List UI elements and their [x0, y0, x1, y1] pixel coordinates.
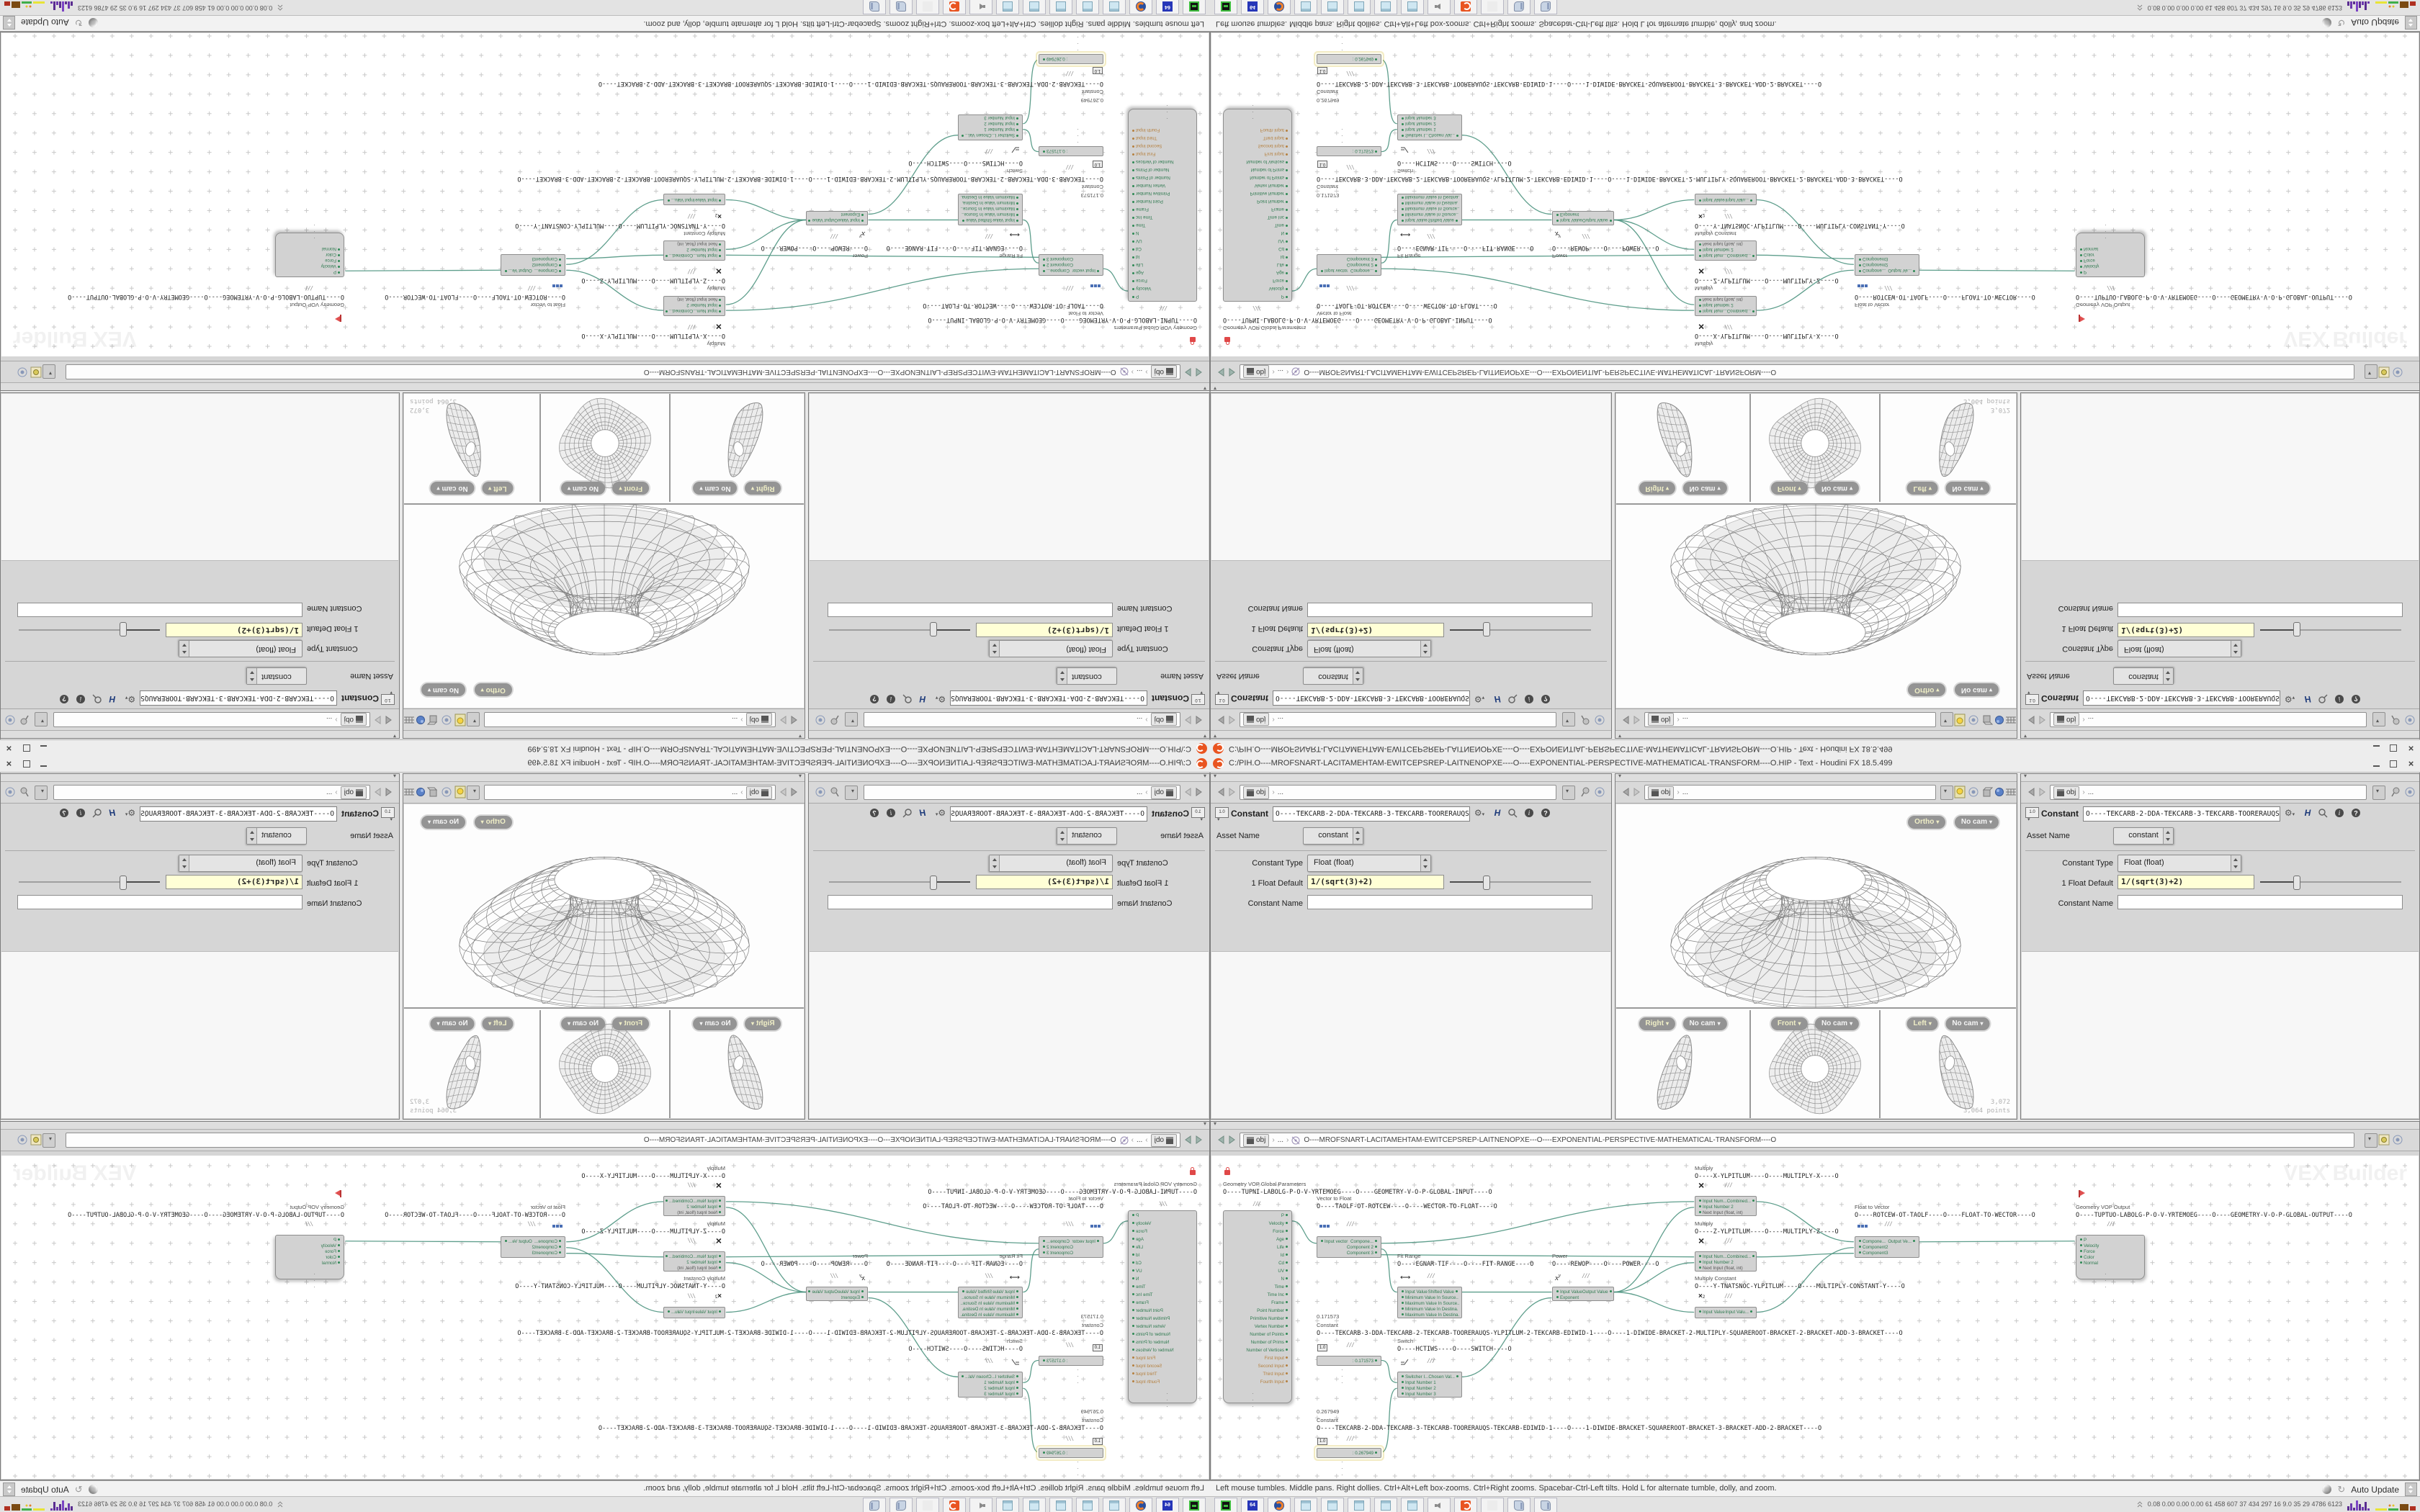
node-body[interactable]: Compone...Output Ve...Component2Componen…: [1855, 1236, 1919, 1258]
node-body[interactable]: PVelocityForceAgeLifeIdCdUVNTimeTime Inc…: [1223, 109, 1292, 302]
constant-type-dropdown[interactable]: Float (float): [179, 640, 302, 657]
node-port-row[interactable]: Input vectorCompone...: [1041, 267, 1101, 273]
node-port-row[interactable]: Minimum Value In Destina.: [1400, 199, 1459, 205]
node-port-row[interactable]: : 0.267949: [1319, 55, 1379, 61]
node-port-row[interactable]: Next Input (float, int): [1698, 296, 1754, 302]
path-dropdown-button[interactable]: [35, 712, 48, 726]
node-port-row[interactable]: Color: [2079, 251, 2142, 257]
gear-icon[interactable]: ⚙▾: [933, 808, 948, 821]
help-browser-icon[interactable]: H: [2300, 808, 2315, 821]
radial-menu-icon[interactable]: [1968, 714, 1979, 726]
node-port-row[interactable]: Number of Points: [1131, 1332, 1194, 1338]
taskbar-app-notepad[interactable]: [1401, 0, 1424, 14]
shaded-sphere-icon[interactable]: [1994, 786, 2005, 798]
node-port-row[interactable]: : 0.171573: [1041, 1359, 1101, 1364]
node-port-row[interactable]: Life: [1226, 261, 1289, 267]
node-port-row[interactable]: Component 2: [1319, 1245, 1379, 1251]
constant-node-icon[interactable]: 1.0: [1191, 807, 1205, 818]
node-port-row[interactable]: P: [1131, 293, 1194, 299]
help-browser-icon[interactable]: H: [105, 691, 120, 704]
constant-name-field[interactable]: [17, 895, 302, 909]
constant-node-icon[interactable]: 1.0: [2025, 694, 2039, 705]
display-flag-icon[interactable]: [2079, 1190, 2080, 1197]
asset-name-dropdown[interactable]: constant: [1303, 827, 1363, 845]
radial-menu-icon[interactable]: [1594, 714, 1605, 726]
chevron-up-icon[interactable]: [2136, 1498, 2143, 1511]
taskbar-app-notepad[interactable]: [1348, 1498, 1371, 1512]
node-port-row[interactable]: Fourth Input: [1131, 1380, 1194, 1385]
obj-breadcrumb[interactable]: obj: [1648, 714, 1674, 726]
taskbar-app-scroll[interactable]: [863, 1498, 886, 1512]
taskbar-app-houdini[interactable]: [943, 0, 966, 14]
obj-breadcrumb[interactable]: obj: [1243, 714, 1269, 726]
node-body[interactable]: Input vectorCompone...Component 2Compone…: [1317, 1236, 1381, 1258]
node-port-row[interactable]: P: [278, 1238, 341, 1243]
node-port-row[interactable]: Input Number 2: [666, 1260, 722, 1266]
node-port-row[interactable]: Age: [1131, 269, 1194, 275]
node-port-row[interactable]: : 0.267949: [1041, 1451, 1101, 1457]
back-icon[interactable]: [789, 714, 800, 726]
forward-icon[interactable]: [1227, 1134, 1237, 1146]
help-browser-icon[interactable]: H: [2300, 691, 2315, 704]
back-icon[interactable]: [1215, 786, 1226, 798]
breadcrumb-ellipsis[interactable]: ...: [1682, 716, 1688, 724]
forward-icon[interactable]: [1227, 714, 1237, 726]
taskbar-app-notepad[interactable]: [1103, 1498, 1126, 1512]
node-port-row[interactable]: Maximum Value In Destina.: [1400, 194, 1459, 199]
node-port-row[interactable]: Component3: [1857, 256, 1917, 261]
viewport-content[interactable]: Ortho▾ No cam▾ Right▾ No cam▾ F: [404, 804, 804, 1118]
asset-name-dropdown[interactable]: constant: [1057, 827, 1117, 845]
taskbar-app-speaker[interactable]: [969, 0, 992, 14]
node-port-row[interactable]: Maximum Value In Source..: [1400, 1301, 1459, 1307]
node-port-row[interactable]: Force: [1131, 277, 1194, 283]
node-port-row[interactable]: Input Num...Combined...: [1698, 252, 1754, 258]
node-port-row[interactable]: Number of Vertices: [1131, 158, 1194, 164]
persp-viewport[interactable]: Ortho▾ No cam▾: [404, 804, 804, 1009]
node-port-row[interactable]: Third Input: [1131, 1372, 1194, 1377]
node-body[interactable]: Input ValueShifted ValueMinimum Value In…: [1397, 1287, 1462, 1318]
node-body[interactable]: Input Num...Combined...Input Number 2Nex…: [663, 1251, 725, 1272]
help-browser-icon[interactable]: H: [105, 808, 120, 821]
info-icon[interactable]: i: [884, 691, 898, 704]
breadcrumb-ellipsis[interactable]: ...: [1278, 1136, 1283, 1144]
radial-menu-icon[interactable]: [4, 714, 16, 726]
node-port-row[interactable]: P: [1226, 293, 1289, 299]
taskbar-app-notepad[interactable]: [1321, 1498, 1344, 1512]
node-port-row[interactable]: Maximum Value In Source..: [1400, 205, 1459, 211]
node-port-row[interactable]: Fourth Input: [1226, 127, 1289, 132]
breadcrumb-ellipsis[interactable]: ...: [1137, 1136, 1142, 1144]
node-port-row[interactable]: UV: [1226, 1269, 1289, 1274]
breadcrumb-ellipsis[interactable]: ...: [732, 788, 738, 796]
node-port-row[interactable]: Primitive Number: [1226, 190, 1289, 196]
view-type-pill[interactable]: Front▾: [613, 1017, 650, 1030]
taskbar-app-houdini[interactable]: [943, 1498, 966, 1512]
path-dropdown-button[interactable]: [42, 364, 55, 379]
taskbar-app-scroll[interactable]: [889, 0, 913, 14]
node-port-row[interactable]: Second Input: [1131, 1364, 1194, 1369]
node-body[interactable]: PVelocityForceColorNormal: [275, 1235, 344, 1279]
forward-icon[interactable]: [372, 714, 383, 726]
breadcrumb-ellipsis[interactable]: ...: [326, 788, 332, 796]
float-default-slider[interactable]: [2260, 623, 2401, 637]
node-port-row[interactable]: Force: [1226, 277, 1289, 283]
constant-type-dropdown[interactable]: Float (float): [1307, 855, 1431, 872]
breadcrumb-ellipsis[interactable]: ...: [1682, 788, 1688, 796]
right-viewport[interactable]: Right▾ No cam▾: [1616, 394, 1749, 502]
pin-icon[interactable]: [19, 714, 30, 726]
taskbar-app-speaker[interactable]: [969, 1498, 992, 1512]
asset-name-dropdown[interactable]: constant: [246, 667, 307, 685]
node-port-row[interactable]: Number of Vertices: [1226, 158, 1289, 164]
float-default-slider[interactable]: [1450, 623, 1591, 637]
node-body[interactable]: : 0.171573: [1317, 146, 1381, 156]
node-body[interactable]: : 0.267949: [1039, 54, 1103, 64]
node-port-row[interactable]: Input Number 2: [1698, 246, 1754, 252]
node-port-row[interactable]: Point Number: [1226, 198, 1289, 204]
forward-icon[interactable]: [1183, 366, 1193, 378]
path-dropdown-button[interactable]: [1940, 712, 1953, 726]
node-port-row[interactable]: Maximum Value In Destina.: [1400, 1313, 1459, 1318]
view-type-pill[interactable]: Right▾: [745, 482, 781, 495]
taskbar-app-houdini[interactable]: [1454, 0, 1477, 14]
taskbar-app-speaker[interactable]: [1428, 0, 1451, 14]
pane-collapse-strip[interactable]: [1, 382, 1209, 390]
obj-breadcrumb[interactable]: obj: [341, 714, 367, 726]
pane-collapse-strip[interactable]: [809, 730, 1209, 738]
node-port-row[interactable]: Input vectorCompone...: [1319, 267, 1379, 273]
node-port-row[interactable]: Velocity: [278, 1243, 341, 1249]
taskbar-app-notepad[interactable]: [1076, 1498, 1099, 1512]
float-default-slider[interactable]: [2260, 875, 2401, 889]
obj-breadcrumb[interactable]: obj: [1151, 714, 1177, 726]
camera-pill[interactable]: No cam▾: [1945, 1017, 1989, 1030]
taskbar-app-terminal[interactable]: [1183, 1498, 1206, 1512]
node-port-row[interactable]: N: [1226, 230, 1289, 235]
gear-icon[interactable]: ⚙▾: [2282, 691, 2297, 704]
gear-icon[interactable]: ⚙▾: [933, 691, 948, 704]
float-default-field[interactable]: 1/(sqrt(3)+2): [1307, 875, 1444, 889]
lamp-icon[interactable]: [1954, 714, 1966, 726]
float-default-field[interactable]: 1/(sqrt(3)+2): [976, 623, 1113, 637]
slider-handle[interactable]: [120, 622, 127, 636]
obj-breadcrumb[interactable]: obj: [746, 714, 772, 726]
node-port-row[interactable]: Velocity: [2079, 263, 2142, 269]
refresh-icon[interactable]: ↻: [2337, 1485, 2345, 1495]
node-port-row[interactable]: Input Number 3: [961, 114, 1020, 120]
search-icon[interactable]: [1505, 691, 1520, 704]
pane-collapse-strip[interactable]: [1, 730, 399, 738]
pin-icon[interactable]: [2390, 714, 2401, 726]
node-port-row[interactable]: Time: [1131, 222, 1194, 228]
node-name-field[interactable]: O----TEKCARB-2-DDA-TEKCARB-3-TEKCARB-TOO…: [140, 690, 337, 706]
help-icon[interactable]: ?: [867, 808, 882, 821]
node-port-row[interactable]: Frame: [1131, 206, 1194, 212]
constant-node-icon[interactable]: 1.0: [1191, 694, 1205, 705]
node-port-row[interactable]: Component 3: [1041, 1251, 1101, 1256]
pane-collapse-strip[interactable]: [1, 774, 399, 782]
node-port-row[interactable]: UV: [1131, 1269, 1194, 1274]
node-port-row[interactable]: Time: [1226, 1284, 1289, 1290]
node-body[interactable]: Input ValueOutput ValueExponent: [1552, 211, 1614, 225]
node-port-row[interactable]: Third Input: [1226, 135, 1289, 140]
node-port-row[interactable]: Input Num...Combined...: [1698, 307, 1754, 313]
taskbar-app-scroll[interactable]: [1534, 1498, 1557, 1512]
snapshot-icon[interactable]: [30, 1133, 42, 1146]
forward-icon[interactable]: [1631, 714, 1642, 726]
node-port-row[interactable]: Number of Points: [1226, 174, 1289, 180]
taskbar-app-notepad[interactable]: [1023, 1498, 1046, 1512]
camera-pill[interactable]: No cam▾: [693, 482, 737, 495]
help-browser-icon[interactable]: H: [915, 691, 930, 704]
node-body[interactable]: PVelocityForceAgeLifeIdCdUVNTimeTime Inc…: [1223, 1210, 1292, 1403]
snapshot-icon[interactable]: [2378, 1133, 2390, 1146]
asset-name-dropdown[interactable]: constant: [1057, 667, 1117, 685]
search-icon[interactable]: [1505, 808, 1520, 821]
back-icon[interactable]: [1620, 714, 1631, 726]
constant-name-field[interactable]: [828, 603, 1113, 617]
constant-type-dropdown[interactable]: Float (float): [1307, 640, 1431, 657]
display-flag-icon[interactable]: [2079, 315, 2080, 322]
path-dropdown-button[interactable]: [35, 786, 48, 800]
node-body[interactable]: : 0.267949: [1317, 1448, 1381, 1458]
node-port-row[interactable]: : 0.171573: [1319, 148, 1379, 153]
front-viewport[interactable]: Front▾ No cam▾: [1751, 394, 1879, 502]
info-icon[interactable]: i: [1522, 691, 1536, 704]
node-port-row[interactable]: Exponent: [809, 1295, 865, 1301]
node-port-row[interactable]: Number of Vertices: [1226, 1348, 1289, 1354]
node-body[interactable]: Input Num...Combined...Input Number 2Nex…: [1695, 1251, 1757, 1272]
search-icon[interactable]: [2316, 808, 2330, 821]
pane-collapse-strip[interactable]: [1615, 774, 2017, 782]
float-default-slider[interactable]: [829, 623, 970, 637]
help-icon[interactable]: ?: [57, 691, 71, 704]
back-icon[interactable]: [2025, 714, 2036, 726]
node-port-row[interactable]: Component 3: [1041, 256, 1101, 261]
node-port-row[interactable]: Number of Prims: [1226, 166, 1289, 172]
node-port-row[interactable]: Input Num...Combined...: [666, 307, 722, 313]
update-mode-spinner[interactable]: [2405, 16, 2417, 30]
node-name-field[interactable]: O----TEKCARB-2-DDA-TEKCARB-3-TEKCARB-TOO…: [140, 806, 337, 822]
back-icon[interactable]: [1194, 1134, 1205, 1146]
node-port-row[interactable]: Cd: [1226, 246, 1289, 251]
radial-menu-icon[interactable]: [441, 786, 452, 798]
node-port-row[interactable]: Point Number: [1131, 1308, 1194, 1314]
taskbar-app-hxd[interactable]: 64: [1241, 1498, 1264, 1512]
node-port-row[interactable]: Input Number 2: [1698, 1260, 1754, 1266]
node-port-row[interactable]: Velocity: [1131, 1221, 1194, 1227]
view-type-pill[interactable]: Right▾: [1639, 1017, 1675, 1030]
node-body[interactable]: Input Num...Combined...Input Number 2Nex…: [1695, 1196, 1757, 1216]
update-mode-spinner[interactable]: [2405, 1482, 2417, 1496]
node-port-row[interactable]: Life: [1226, 1245, 1289, 1251]
front-viewport[interactable]: Front▾ No cam▾: [1751, 1010, 1879, 1118]
taskbar-app-notepad[interactable]: [1049, 1498, 1072, 1512]
taskbar-app-houdini[interactable]: [1454, 1498, 1477, 1512]
taskbar-app-notepad[interactable]: [1049, 0, 1072, 14]
lamp-icon[interactable]: [454, 714, 466, 726]
path-dropdown-button[interactable]: [1562, 786, 1575, 800]
forward-icon[interactable]: [1227, 366, 1237, 378]
grid-display-icon[interactable]: [2005, 714, 2017, 726]
node-body[interactable]: Input vectorCompone...Component 2Compone…: [1317, 254, 1381, 276]
obj-breadcrumb[interactable]: obj: [341, 786, 367, 799]
node-port-row[interactable]: Input Num...Combined...: [666, 1254, 722, 1260]
constant-name-field[interactable]: [2117, 895, 2403, 909]
node-port-row[interactable]: P: [2079, 1238, 2142, 1243]
constant-node-icon[interactable]: 1.0: [381, 807, 395, 818]
render-sphere-icon[interactable]: [2322, 18, 2331, 27]
node-port-row[interactable]: Number of Prims: [1131, 1340, 1194, 1346]
node-port-row[interactable]: Switcher I...Chosen Val...: [1400, 1374, 1459, 1380]
taskbar-app-scroll[interactable]: [1507, 0, 1531, 14]
pin-icon[interactable]: [1579, 786, 1591, 798]
pin-icon[interactable]: [829, 714, 841, 726]
node-port-row[interactable]: Color: [2079, 1255, 2142, 1261]
auto-update-label[interactable]: Auto Update: [21, 1485, 69, 1495]
node-port-row[interactable]: Normal: [2079, 1261, 2142, 1266]
info-icon[interactable]: i: [73, 808, 88, 821]
node-port-row[interactable]: Cd: [1226, 1261, 1289, 1266]
network-path-name[interactable]: O----MROFSNART-LACITAMEHTAM-EWITCEPSREP-…: [1304, 1136, 1776, 1144]
float-default-field[interactable]: 1/(sqrt(3)+2): [166, 623, 302, 637]
view-type-pill[interactable]: Left▾: [1907, 1017, 1938, 1030]
obj-breadcrumb[interactable]: obj: [1243, 786, 1269, 799]
auto-update-label[interactable]: Auto Update: [2351, 18, 2399, 28]
node-port-row[interactable]: Component 2: [1041, 1245, 1101, 1251]
node-port-row[interactable]: Switcher I...Chosen Val...: [1400, 132, 1459, 138]
node-body[interactable]: Switcher I...Chosen Val...Input Number 1…: [1397, 1372, 1462, 1398]
node-port-row[interactable]: : 0.267949: [1319, 1451, 1379, 1457]
chevron-up-icon[interactable]: [277, 1, 284, 14]
slider-handle[interactable]: [1483, 622, 1490, 636]
node-port-row[interactable]: Minimum Value In Source..: [1400, 1295, 1459, 1301]
help-browser-icon[interactable]: H: [1490, 691, 1505, 704]
node-port-row[interactable]: Input Number 2: [1698, 302, 1754, 307]
node-port-row[interactable]: Maximum Value In Destina.: [961, 1313, 1020, 1318]
obj-breadcrumb[interactable]: obj: [1151, 366, 1177, 379]
radial-menu-icon[interactable]: [1968, 786, 1979, 798]
viewport-content[interactable]: Ortho▾ No cam▾ Right▾ No cam▾ F: [404, 394, 804, 708]
geometry-cube-icon[interactable]: [427, 714, 439, 726]
path-dropdown-button[interactable]: [845, 786, 858, 800]
node-port-row[interactable]: Input vectorCompone...: [1319, 1239, 1379, 1245]
back-icon[interactable]: [789, 786, 800, 798]
back-icon[interactable]: [384, 714, 395, 726]
lamp-icon[interactable]: [1954, 786, 1966, 798]
node-body[interactable]: Input ValueInput Valu...: [663, 1307, 725, 1318]
node-body[interactable]: Switcher I...Chosen Val...Input Number 1…: [1397, 114, 1462, 140]
constant-name-field[interactable]: [828, 895, 1113, 909]
node-port-row[interactable]: Next Input (float, int): [1698, 1266, 1754, 1272]
pane-collapse-strip[interactable]: [1211, 1122, 2419, 1130]
obj-breadcrumb[interactable]: obj: [1151, 786, 1177, 799]
node-name-field[interactable]: O----TEKCARB-2-DDA-TEKCARB-3-TEKCARB-TOO…: [1273, 806, 1470, 822]
path-dropdown-button[interactable]: [2365, 364, 2378, 379]
node-body[interactable]: PVelocityForceColorNormal: [275, 233, 344, 277]
search-icon[interactable]: [900, 691, 915, 704]
obj-breadcrumb[interactable]: obj: [1648, 786, 1674, 799]
taskbar-app-terminal[interactable]: [1214, 1498, 1237, 1512]
asset-name-dropdown[interactable]: constant: [246, 827, 307, 845]
forward-icon[interactable]: [1183, 714, 1193, 726]
node-port-row[interactable]: Next Input (float, int): [1698, 1210, 1754, 1216]
node-port-row[interactable]: Exponent: [1555, 1295, 1611, 1301]
breadcrumb-ellipsis[interactable]: ...: [2088, 716, 2094, 724]
node-port-row[interactable]: Age: [1226, 269, 1289, 275]
path-dropdown-button[interactable]: [1562, 712, 1575, 726]
persp-viewport[interactable]: Ortho▾ No cam▾: [404, 503, 804, 708]
constant-type-dropdown[interactable]: Float (float): [2117, 640, 2241, 657]
node-body[interactable]: Input vectorCompone...Component 2Compone…: [1039, 1236, 1103, 1258]
node-body[interactable]: Switcher I...Chosen Val...Input Number 1…: [958, 114, 1023, 140]
slider-handle[interactable]: [1483, 876, 1490, 890]
taskbar-app-notepad[interactable]: [1374, 1498, 1397, 1512]
update-mode-spinner[interactable]: [3, 1482, 15, 1496]
node-port-row[interactable]: Id: [1131, 253, 1194, 259]
node-port-row[interactable]: Fourth Input: [1131, 127, 1194, 132]
view-type-pill[interactable]: Left▾: [1907, 482, 1938, 495]
constant-type-dropdown[interactable]: Float (float): [989, 640, 1113, 657]
grid-display-icon[interactable]: [403, 786, 415, 798]
minimize-button[interactable]: [37, 743, 49, 753]
node-port-row[interactable]: Vertex Number: [1131, 182, 1194, 188]
taskbar-app-terminal[interactable]: [1214, 0, 1237, 14]
node-port-row[interactable]: Input ValueShifted Value: [1400, 217, 1459, 222]
node-port-row[interactable]: Force: [2079, 257, 2142, 263]
node-body[interactable]: PVelocityForceColorNormal: [2076, 1235, 2145, 1279]
taskbar-app-ghost[interactable]: [916, 0, 939, 14]
constant-type-dropdown[interactable]: Float (float): [179, 855, 302, 872]
node-body[interactable]: Switcher I...Chosen Val...Input Number 1…: [958, 1372, 1023, 1398]
back-icon[interactable]: [1194, 714, 1205, 726]
node-body[interactable]: : 0.171573: [1039, 146, 1103, 156]
view-type-pill[interactable]: Left▾: [482, 1017, 513, 1030]
node-port-row[interactable]: Input ValueOutput Value: [1555, 217, 1611, 222]
node-port-row[interactable]: Compone...Output Ve...: [1857, 1239, 1917, 1245]
forward-icon[interactable]: [2037, 714, 2048, 726]
node-port-row[interactable]: Next Input (float, int): [666, 1210, 722, 1216]
node-name-field[interactable]: O----TEKCARB-2-DDA-TEKCARB-3-TEKCARB-TOO…: [950, 806, 1147, 822]
shaded-sphere-icon[interactable]: [415, 786, 426, 798]
node-port-row[interactable]: Time: [1131, 1284, 1194, 1290]
node-port-row[interactable]: First Input: [1226, 1356, 1289, 1362]
path-dropdown-button[interactable]: [467, 712, 480, 726]
viewport-content[interactable]: Ortho▾ No cam▾ Right▾ No cam▾ F: [1616, 804, 2016, 1118]
node-body[interactable]: Compone...Output Ve...Component2Componen…: [501, 1236, 565, 1258]
node-port-row[interactable]: Cd: [1131, 1261, 1194, 1266]
taskbar-app-notepad[interactable]: [1401, 1498, 1424, 1512]
node-port-row[interactable]: Cd: [1131, 246, 1194, 251]
node-port-row[interactable]: UV: [1131, 238, 1194, 243]
node-port-row[interactable]: Second Input: [1226, 143, 1289, 148]
float-default-field[interactable]: 1/(sqrt(3)+2): [2117, 875, 2254, 889]
view-type-pill[interactable]: Right▾: [1639, 482, 1675, 495]
node-port-row[interactable]: Input Number 2: [961, 120, 1020, 126]
taskbar-app-terminal[interactable]: [1183, 0, 1206, 14]
path-dropdown-button[interactable]: [1940, 786, 1953, 800]
close-button[interactable]: ×: [3, 759, 15, 769]
refresh-icon[interactable]: ↻: [2337, 18, 2345, 28]
gear-icon[interactable]: ⚙▾: [2282, 808, 2297, 821]
node-port-row[interactable]: Normal: [2079, 246, 2142, 251]
node-port-row[interactable]: Second Input: [1131, 143, 1194, 148]
info-icon[interactable]: i: [1522, 808, 1536, 821]
camera-pill[interactable]: No cam▾: [561, 482, 605, 495]
node-port-row[interactable]: Id: [1131, 1253, 1194, 1259]
node-port-row[interactable]: : 0.171573: [1319, 1359, 1379, 1364]
